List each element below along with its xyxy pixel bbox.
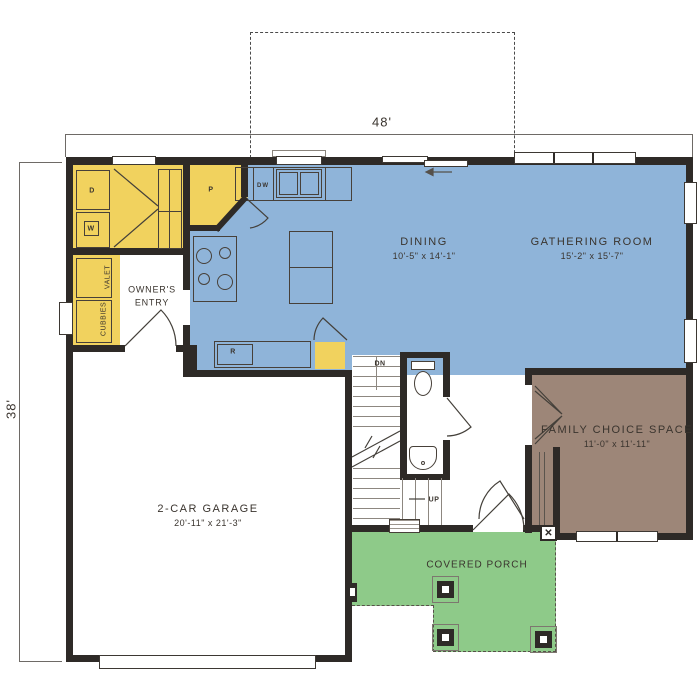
family-window-mullion xyxy=(616,532,618,541)
room-size-garage: 20'-11" x 21'-3" xyxy=(174,518,242,528)
gathering-window-mullion xyxy=(592,153,594,163)
room-label-garage: 2-CAR GARAGE xyxy=(157,503,258,515)
stair-break-line xyxy=(352,431,400,467)
cubbies-label: CUBBIES xyxy=(101,302,108,336)
wall-laundry-owners xyxy=(73,248,183,255)
dimension-tick xyxy=(19,162,62,163)
room-label-family: FAMILY CHOICE SPACE xyxy=(541,424,693,436)
porch-column-center xyxy=(540,636,547,643)
porch-edge xyxy=(352,605,434,606)
wall-garage-right xyxy=(345,377,352,662)
gathering-window-mullion xyxy=(553,153,555,163)
coat-closet-door xyxy=(479,481,524,519)
room-size-gathering: 15'-2" x 15'-7" xyxy=(561,251,624,261)
dimension-width-label: 48' xyxy=(372,115,392,130)
wall-right xyxy=(686,157,693,183)
room-label-porch: COVERED PORCH xyxy=(426,560,527,571)
powder-door xyxy=(447,398,471,436)
laundry-closet-shelf xyxy=(158,211,182,212)
front-door xyxy=(473,494,524,530)
range-burner xyxy=(196,248,212,264)
gathering-side-window xyxy=(684,319,697,363)
gathering-windows xyxy=(514,152,636,164)
family-door-opening xyxy=(525,385,532,445)
washer-label: W xyxy=(87,226,94,233)
optional-area-outline xyxy=(250,32,515,158)
valet-label: VALET xyxy=(105,265,112,289)
range-burner xyxy=(217,274,233,290)
sink-basin xyxy=(279,172,298,195)
stairs-up-label: UP xyxy=(429,497,440,504)
counter-divider xyxy=(325,167,326,201)
refrigerator-label: R xyxy=(230,349,236,356)
laundry-window xyxy=(112,156,156,165)
dimension-height-label: 38' xyxy=(4,399,19,419)
toilet-tank xyxy=(411,361,435,370)
dishwasher-label: DW xyxy=(257,183,269,189)
garage-door xyxy=(99,655,316,669)
wall-closet-right xyxy=(553,447,560,533)
room-size-family: 11'-0" x 11'-11" xyxy=(584,439,650,449)
kitchen-window xyxy=(276,156,322,165)
wall-powder-left xyxy=(400,352,407,480)
porch-half-column-center xyxy=(350,588,355,596)
wall-garage-top xyxy=(66,345,125,352)
dimension-tick xyxy=(65,134,66,157)
stairs-down-label: DN xyxy=(374,361,385,368)
dimension-tick xyxy=(19,661,62,662)
sliding-door-panel xyxy=(382,156,428,163)
gathering-side-window xyxy=(684,182,697,224)
wall-kitchen-bottom xyxy=(190,370,352,377)
wall-closet-left xyxy=(525,443,532,533)
range-counter xyxy=(193,236,237,302)
owners-entry-door xyxy=(125,310,176,346)
wall-powder-right xyxy=(443,352,450,397)
pantry-label: P xyxy=(208,187,213,194)
wall-right xyxy=(686,362,693,540)
wall-pantry-bottom xyxy=(190,225,220,231)
porch-steps xyxy=(389,519,420,533)
kitchen-island xyxy=(289,231,333,268)
closet-rod xyxy=(544,452,545,525)
access-panel: ✕ xyxy=(540,525,557,541)
stairs-down-treads xyxy=(353,468,400,520)
dimension-line-height xyxy=(19,162,20,662)
sliding-door-panel xyxy=(424,160,468,167)
dryer-label: D xyxy=(89,188,95,195)
laundry-closet xyxy=(158,169,182,249)
range-burner xyxy=(219,247,231,259)
counter-divider xyxy=(253,167,254,201)
closet-rod xyxy=(539,452,540,525)
sink-basin xyxy=(300,172,319,195)
range-burner xyxy=(198,273,210,285)
toilet-bowl xyxy=(414,371,432,396)
kitchen-closet-floor xyxy=(315,342,345,369)
counter-divider xyxy=(273,167,274,201)
room-label-dining: DINING xyxy=(400,236,448,248)
sink-drain xyxy=(421,461,425,465)
wall-gathering-family xyxy=(525,368,693,375)
room-label-owners-entry: OWNER'S ENTRY xyxy=(120,283,184,308)
powder-sink xyxy=(409,446,437,470)
floor-plan: 48' 38' xyxy=(0,0,700,700)
wall-laundry-right xyxy=(183,165,190,290)
porch-column-center xyxy=(442,634,449,641)
laundry-closet-divider xyxy=(169,169,170,249)
room-label-gathering: GATHERING ROOM xyxy=(531,236,654,248)
dimension-line-width xyxy=(66,134,693,135)
kitchen-island xyxy=(289,267,333,304)
wall-left xyxy=(66,157,73,662)
wall-right xyxy=(686,223,693,320)
porch-column-center xyxy=(442,586,449,593)
cubbies-window xyxy=(59,302,73,335)
room-size-dining: 10'-5" x 14'-1" xyxy=(393,251,456,261)
dimension-tick xyxy=(692,134,693,157)
